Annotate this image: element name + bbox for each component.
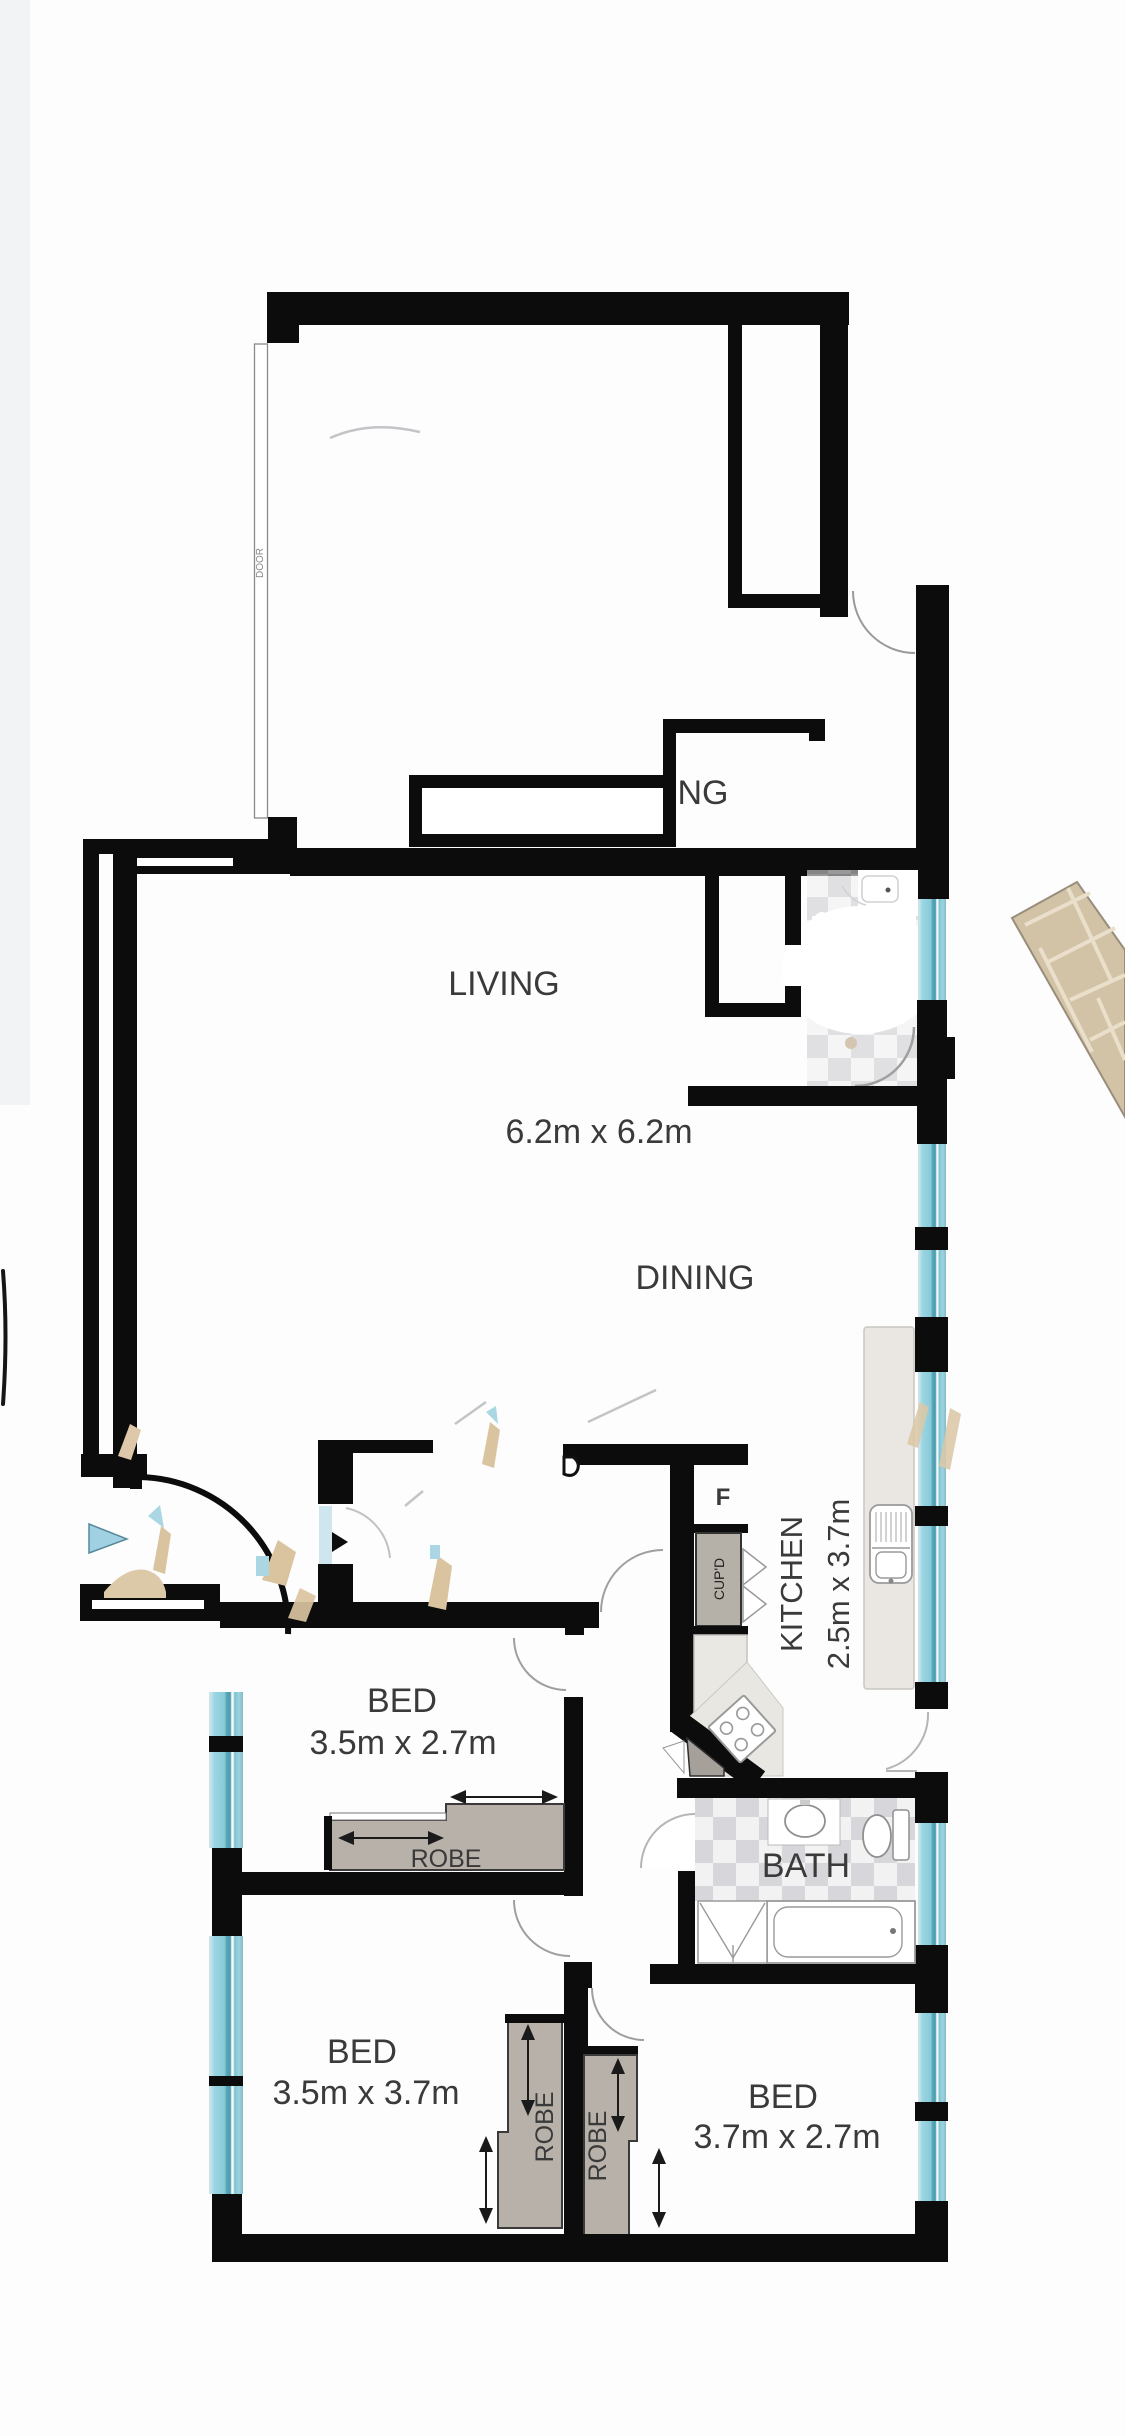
svg-text:LIVING: LIVING xyxy=(448,965,559,1003)
svg-text:2.5m x 3.7m: 2.5m x 3.7m xyxy=(821,1499,856,1670)
svg-text:BATH: BATH xyxy=(762,1847,850,1885)
svg-text:ROBE: ROBE xyxy=(584,2111,612,2182)
svg-text:F: F xyxy=(716,1484,731,1511)
svg-text:ROBE: ROBE xyxy=(531,2092,559,2163)
svg-text:ROBE: ROBE xyxy=(411,1845,482,1873)
svg-text:BED: BED xyxy=(748,2078,818,2116)
svg-text:BED: BED xyxy=(367,1682,437,1720)
svg-text:DINING: DINING xyxy=(636,1259,755,1297)
svg-text:6.2m x 6.2m: 6.2m x 6.2m xyxy=(505,1113,692,1151)
svg-text:BED: BED xyxy=(327,2033,397,2071)
svg-text:DOOR: DOOR xyxy=(255,548,266,578)
svg-text:3.7m x 2.7m: 3.7m x 2.7m xyxy=(693,2118,880,2156)
svg-text:KITCHEN: KITCHEN xyxy=(774,1516,809,1652)
svg-text:CUP'D: CUP'D xyxy=(711,1558,727,1600)
svg-text:NG: NG xyxy=(678,774,729,812)
svg-text:3.5m x 2.7m: 3.5m x 2.7m xyxy=(309,1724,496,1762)
svg-text:3.5m x 3.7m: 3.5m x 3.7m xyxy=(272,2074,459,2112)
